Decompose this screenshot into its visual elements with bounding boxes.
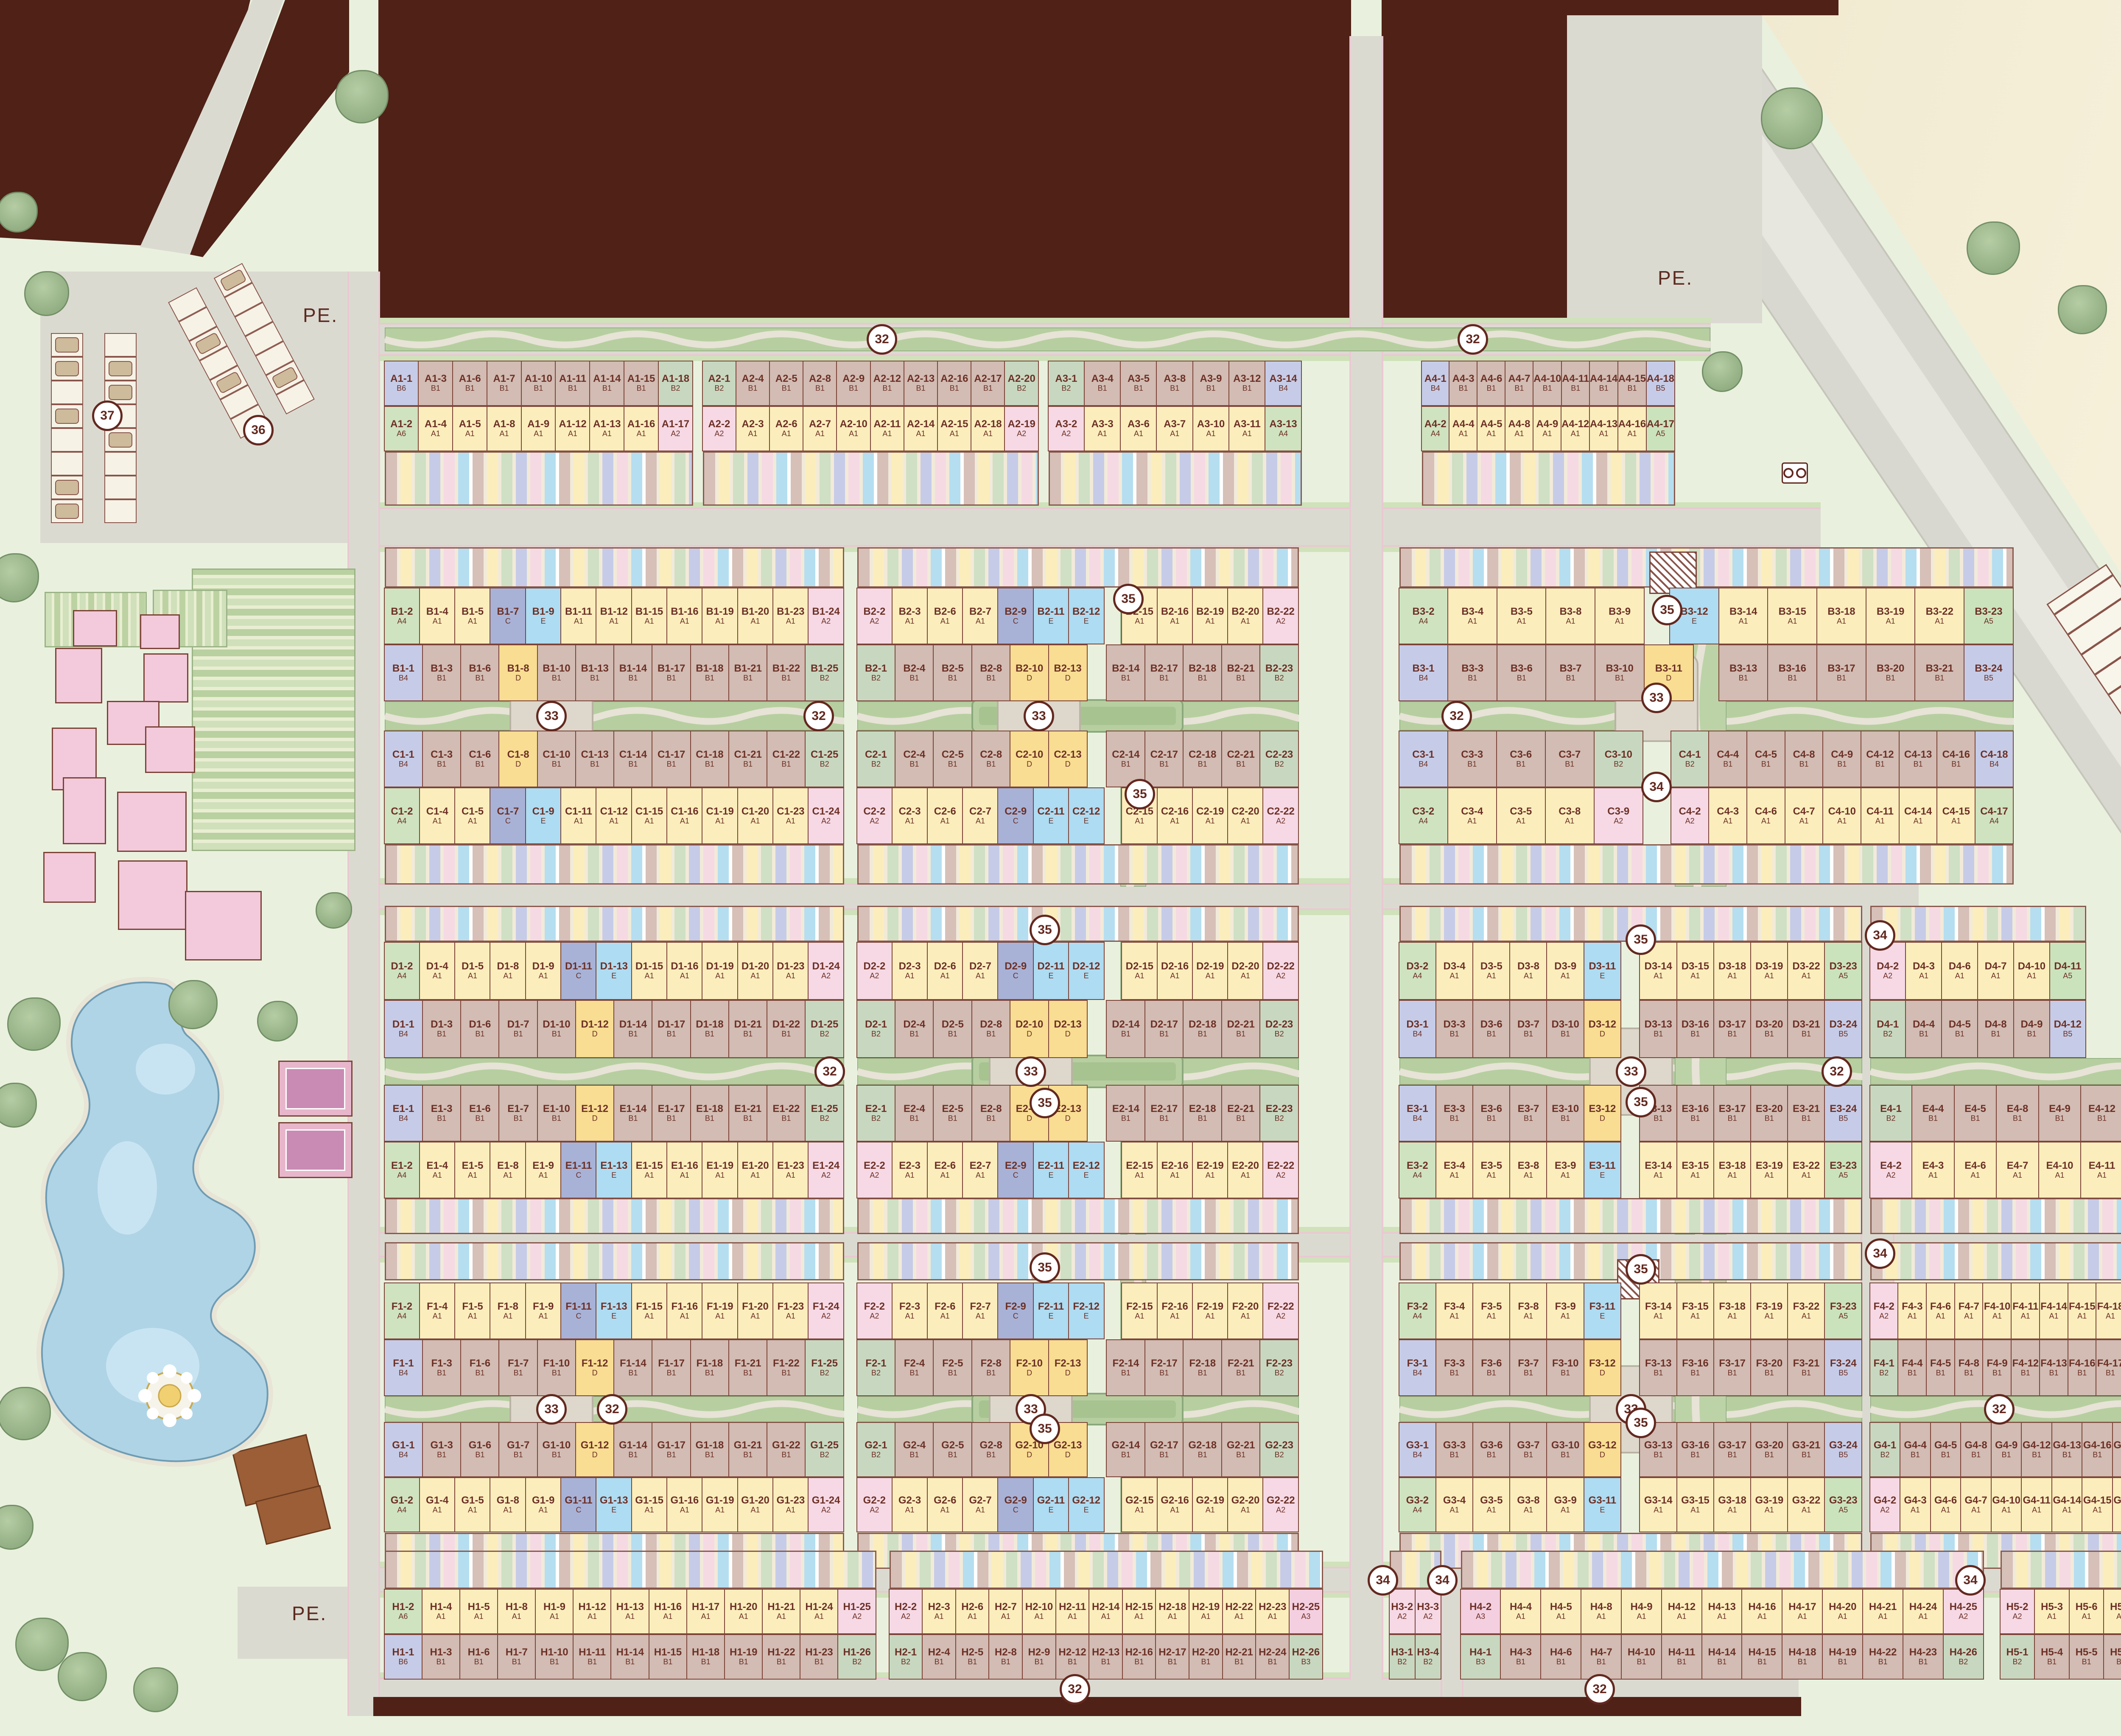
lot-G2-2[interactable]: G2-2A2 [856,1477,893,1532]
lot-G3-23[interactable]: G3-23A5 [1824,1477,1862,1532]
lot-H1-21[interactable]: H1-21A1 [762,1589,801,1634]
lot-D2-17[interactable]: D2-17B1 [1144,1000,1184,1058]
lot-E1-22[interactable]: E1-22B1 [767,1085,806,1142]
lot-A1-5[interactable]: A1-5A1 [452,406,487,451]
lot-C2-18[interactable]: C2-18B1 [1183,731,1222,787]
lot-E1-14[interactable]: E1-14B1 [613,1085,653,1142]
lot-B3-2[interactable]: B3-2A4 [1399,588,1449,644]
lot-H2-25[interactable]: H2-25A3 [1289,1589,1323,1634]
lot-G4-15[interactable]: G4-15A1 [2082,1477,2113,1532]
lot-E2-16[interactable]: E2-16A1 [1157,1142,1193,1198]
lot-H4-9[interactable]: H4-9A1 [1621,1589,1662,1634]
lot-A1-16[interactable]: A1-16A1 [624,406,659,451]
lot-G3-8[interactable]: G3-8A1 [1509,1477,1547,1532]
lot-B1-15[interactable]: B1-15A1 [631,588,668,644]
lot-G3-6[interactable]: G3-6B1 [1472,1422,1511,1477]
lot-H2-26[interactable]: H2-26B3 [1289,1634,1323,1680]
lot-F4-16[interactable]: F4-16B1 [2068,1339,2097,1396]
lot-H1-2[interactable]: H1-2A6 [384,1589,423,1634]
lot-E3-3[interactable]: E3-3B1 [1435,1085,1474,1142]
lot-B1-25[interactable]: B1-25B2 [805,644,844,701]
lot-H1-25[interactable]: H1-25A2 [837,1589,876,1634]
lot-D2-9[interactable]: D2-9C [997,942,1034,1000]
lot-E2-7[interactable]: E2-7A1 [962,1142,999,1198]
lot-C1-5[interactable]: C1-5A1 [454,787,491,844]
lot-F1-17[interactable]: F1-17B1 [652,1339,691,1396]
lot-B2-7[interactable]: B2-7A1 [962,588,999,644]
lot-A3-2[interactable]: A3-2A2 [1048,406,1085,451]
lot-A3-6[interactable]: A3-6A1 [1120,406,1157,451]
lot-F4-7[interactable]: F4-7A1 [1954,1282,1984,1339]
lot-C1-22[interactable]: C1-22B1 [767,731,806,787]
lot-G1-21[interactable]: G1-21B1 [728,1422,768,1477]
lot-A4-7[interactable]: A4-7B1 [1505,361,1533,406]
lot-C1-11[interactable]: C1-11A1 [560,787,597,844]
lot-E3-19[interactable]: E3-19A1 [1750,1142,1788,1198]
lot-B2-18[interactable]: B2-18B1 [1183,644,1222,701]
lot-G3-9[interactable]: G3-9A1 [1546,1477,1584,1532]
lot-C3-5[interactable]: C3-5A1 [1496,787,1546,844]
lot-D1-7[interactable]: D1-7B1 [498,1000,538,1058]
lot-B2-9[interactable]: B2-9C [997,588,1034,644]
lot-F1-9[interactable]: F1-9A1 [525,1282,562,1339]
lot-E1-3[interactable]: E1-3B1 [422,1085,462,1142]
lot-G1-25[interactable]: G1-25B2 [805,1422,844,1477]
lot-D1-6[interactable]: D1-6B1 [460,1000,500,1058]
lot-E3-24[interactable]: E3-24B5 [1824,1085,1862,1142]
map-marker-34[interactable]: 34 [1865,1238,1895,1269]
lot-H2-17[interactable]: H2-17B1 [1155,1634,1189,1680]
lot-H2-24[interactable]: H2-24B1 [1255,1634,1290,1680]
lot-E4-4[interactable]: E4-4B1 [1911,1085,1955,1142]
map-marker-33[interactable]: 33 [1641,683,1672,713]
lot-E4-1[interactable]: E4-1B2 [1869,1085,1913,1142]
lot-H1-16[interactable]: H1-16A1 [649,1589,688,1634]
lot-G4-11[interactable]: G4-11A1 [2021,1477,2052,1532]
lot-G3-16[interactable]: G3-16B1 [1676,1422,1715,1477]
lot-D3-8[interactable]: D3-8A1 [1509,942,1547,1000]
lot-C2-8[interactable]: C2-8B1 [971,731,1011,787]
lot-H2-6[interactable]: H2-6A1 [955,1589,990,1634]
lot-E3-2[interactable]: E3-2A4 [1399,1142,1437,1198]
lot-C1-12[interactable]: C1-12A1 [596,787,632,844]
lot-F2-15[interactable]: F2-15A1 [1121,1282,1158,1339]
lot-D4-8[interactable]: D4-8B1 [1977,1000,2014,1058]
lot-F4-2[interactable]: F4-2A2 [1869,1282,1899,1339]
lot-F1-15[interactable]: F1-15A1 [631,1282,668,1339]
lot-B1-2[interactable]: B1-2A4 [384,588,420,644]
lot-D2-5[interactable]: D2-5B1 [933,1000,972,1058]
lot-A3-5[interactable]: A3-5B1 [1120,361,1157,406]
lot-F2-1[interactable]: F2-1B2 [856,1339,896,1396]
lot-A2-12[interactable]: A2-12B1 [870,361,905,406]
lot-G1-24[interactable]: G1-24A2 [808,1477,844,1532]
lot-D1-3[interactable]: D1-3B1 [422,1000,462,1058]
lot-B2-11[interactable]: B2-11E [1033,588,1069,644]
lot-C1-24[interactable]: C1-24A2 [808,787,844,844]
lot-G1-12[interactable]: G1-12D [575,1422,615,1477]
lot-E1-4[interactable]: E1-4A1 [419,1142,456,1198]
lot-A3-10[interactable]: A3-10A1 [1192,406,1230,451]
lot-H5-8[interactable]: H5-8B1 [2103,1634,2121,1680]
lot-H1-18[interactable]: H1-18B1 [686,1634,725,1680]
lot-E2-11[interactable]: E2-11E [1033,1142,1069,1198]
lot-G1-19[interactable]: G1-19A1 [702,1477,738,1532]
lot-A1-8[interactable]: A1-8A1 [487,406,522,451]
lot-B2-4[interactable]: B2-4B1 [895,644,934,701]
lot-E3-23[interactable]: E3-23A5 [1824,1142,1862,1198]
lot-D1-2[interactable]: D1-2A4 [384,942,420,1000]
lot-F4-8[interactable]: F4-8B1 [1954,1339,1984,1396]
lot-B2-5[interactable]: B2-5B1 [933,644,972,701]
lot-G4-16[interactable]: G4-16B1 [2082,1422,2113,1477]
lot-H5-1[interactable]: H5-1B2 [2000,1634,2035,1680]
lot-E3-10[interactable]: E3-10B1 [1546,1085,1584,1142]
lot-E1-6[interactable]: E1-6B1 [460,1085,500,1142]
lot-A4-8[interactable]: A4-8A1 [1505,406,1533,451]
map-marker-34[interactable]: 34 [1368,1565,1398,1596]
lot-F3-13[interactable]: F3-13B1 [1639,1339,1677,1396]
lot-H4-11[interactable]: H4-11B1 [1661,1634,1702,1680]
lot-A4-3[interactable]: A4-3B1 [1449,361,1477,406]
lot-D2-4[interactable]: D2-4B1 [895,1000,934,1058]
lot-F3-4[interactable]: F3-4A1 [1435,1282,1474,1339]
lot-E1-13[interactable]: E1-13E [596,1142,632,1198]
lot-H1-7[interactable]: H1-7B1 [497,1634,536,1680]
lot-B1-13[interactable]: B1-13B1 [575,644,615,701]
lot-E3-17[interactable]: E3-17B1 [1713,1085,1752,1142]
lot-H1-3[interactable]: H1-3B1 [422,1634,461,1680]
map-marker-37[interactable]: 37 [92,400,123,431]
lot-D1-18[interactable]: D1-18B1 [690,1000,730,1058]
lot-F3-10[interactable]: F3-10B1 [1546,1339,1584,1396]
lot-E4-12[interactable]: E4-12B1 [2080,1085,2121,1142]
lot-F3-16[interactable]: F3-16B1 [1676,1339,1715,1396]
lot-G2-21[interactable]: G2-21B1 [1221,1422,1261,1477]
lot-C3-9[interactable]: C3-9A2 [1594,787,1644,844]
lot-C2-1[interactable]: C2-1B2 [856,731,896,787]
lot-A3-7[interactable]: A3-7A1 [1156,406,1193,451]
lot-D1-13[interactable]: D1-13E [596,942,632,1000]
lot-H4-12[interactable]: H4-12A1 [1661,1589,1702,1634]
lot-G1-23[interactable]: G1-23A1 [772,1477,809,1532]
lot-E1-25[interactable]: E1-25B2 [805,1085,844,1142]
lot-A1-12[interactable]: A1-12A1 [555,406,590,451]
lot-H1-6[interactable]: H1-6B1 [459,1634,498,1680]
lot-G3-18[interactable]: G3-18A1 [1713,1477,1752,1532]
lot-C2-7[interactable]: C2-7A1 [962,787,999,844]
lot-G1-16[interactable]: G1-16A1 [666,1477,703,1532]
lot-F1-20[interactable]: F1-20A1 [737,1282,774,1339]
lot-E2-15[interactable]: E2-15A1 [1121,1142,1158,1198]
lot-B3-16[interactable]: B3-16B1 [1767,644,1817,701]
lot-C1-16[interactable]: C1-16A1 [666,787,703,844]
lot-H4-25[interactable]: H4-25A2 [1943,1589,1984,1634]
lot-D3-16[interactable]: D3-16B1 [1676,1000,1715,1058]
lot-E3-7[interactable]: E3-7B1 [1509,1085,1547,1142]
lot-E1-11[interactable]: E1-11C [560,1142,597,1198]
lot-G2-4[interactable]: G2-4B1 [895,1422,934,1477]
lot-H2-14[interactable]: H2-14A1 [1088,1589,1123,1634]
lot-B3-23[interactable]: B3-23A5 [1964,588,2014,644]
lot-E1-2[interactable]: E1-2A4 [384,1142,420,1198]
lot-D4-10[interactable]: D4-10A1 [2013,942,2050,1000]
lot-F3-3[interactable]: F3-3B1 [1435,1339,1474,1396]
lot-A1-3[interactable]: A1-3B1 [418,361,453,406]
lot-D1-15[interactable]: D1-15A1 [631,942,668,1000]
map-marker-35[interactable]: 35 [1030,1414,1060,1444]
lot-B1-23[interactable]: B1-23A1 [772,588,809,644]
lot-A3-12[interactable]: A3-12B1 [1228,361,1266,406]
lot-C2-22[interactable]: C2-22A2 [1262,787,1299,844]
lot-D1-20[interactable]: D1-20A1 [737,942,774,1000]
lot-B3-4[interactable]: B3-4A1 [1447,588,1497,644]
lot-C2-12[interactable]: C2-12E [1068,787,1105,844]
lot-C3-1[interactable]: C3-1B4 [1399,731,1449,787]
lot-E3-12[interactable]: E3-12D [1584,1085,1622,1142]
lot-C1-18[interactable]: C1-18B1 [690,731,730,787]
lot-D1-12[interactable]: D1-12D [575,1000,615,1058]
lot-E1-9[interactable]: E1-9A1 [525,1142,562,1198]
lot-H4-5[interactable]: H4-5A1 [1540,1589,1581,1634]
lot-H4-20[interactable]: H4-20A1 [1822,1589,1863,1634]
lot-F4-17[interactable]: F4-17B1 [2096,1339,2121,1396]
lot-B1-7[interactable]: B1-7C [490,588,526,644]
lot-D4-2[interactable]: D4-2A2 [1869,942,1906,1000]
lot-H2-5[interactable]: H2-5B1 [955,1634,990,1680]
lot-C3-8[interactable]: C3-8A1 [1545,787,1595,844]
lot-D1-19[interactable]: D1-19A1 [702,942,738,1000]
lot-C3-4[interactable]: C3-4A1 [1447,787,1497,844]
lot-D1-23[interactable]: D1-23A1 [772,942,809,1000]
lot-B3-7[interactable]: B3-7B1 [1545,644,1595,701]
lot-A2-4[interactable]: A2-4B1 [736,361,770,406]
lot-F3-6[interactable]: F3-6B1 [1472,1339,1511,1396]
lot-F1-25[interactable]: F1-25B2 [805,1339,844,1396]
lot-H2-21[interactable]: H2-21B1 [1222,1634,1256,1680]
lot-D3-18[interactable]: D3-18A1 [1713,942,1752,1000]
lot-G3-10[interactable]: G3-10B1 [1546,1422,1584,1477]
lot-D1-16[interactable]: D1-16A1 [666,942,703,1000]
map-marker-33[interactable]: 33 [1616,1056,1646,1087]
lot-G3-22[interactable]: G3-22A1 [1787,1477,1825,1532]
lot-D2-14[interactable]: D2-14B1 [1106,1000,1145,1058]
lot-F2-20[interactable]: F2-20A1 [1227,1282,1264,1339]
lot-E4-6[interactable]: E4-6A1 [1954,1142,1997,1198]
lot-D2-13[interactable]: D2-13D [1048,1000,1088,1058]
lot-G3-1[interactable]: G3-1B4 [1399,1422,1437,1477]
lot-H1-10[interactable]: H1-10B1 [535,1634,574,1680]
lot-A2-5[interactable]: A2-5B1 [769,361,804,406]
lot-D2-19[interactable]: D2-19A1 [1192,942,1228,1000]
lot-G3-4[interactable]: G3-4A1 [1435,1477,1474,1532]
lot-A1-15[interactable]: A1-15B1 [624,361,659,406]
lot-B2-23[interactable]: B2-23B2 [1259,644,1299,701]
lot-D2-21[interactable]: D2-21B1 [1221,1000,1261,1058]
lot-D1-8[interactable]: D1-8A1 [490,942,526,1000]
map-marker-32[interactable]: 32 [1584,1674,1615,1705]
lot-G3-3[interactable]: G3-3B1 [1435,1422,1474,1477]
lot-H1-24[interactable]: H1-24A1 [800,1589,839,1634]
lot-C2-11[interactable]: C2-11E [1033,787,1069,844]
lot-F1-4[interactable]: F1-4A1 [419,1282,456,1339]
lot-G2-5[interactable]: G2-5B1 [933,1422,972,1477]
lot-C1-6[interactable]: C1-6B1 [460,731,500,787]
lot-E3-9[interactable]: E3-9A1 [1546,1142,1584,1198]
lot-G2-16[interactable]: G2-16A1 [1157,1477,1193,1532]
lot-A2-10[interactable]: A2-10A1 [836,406,871,451]
map-marker-33[interactable]: 33 [536,701,567,731]
lot-H2-8[interactable]: H2-8B1 [988,1634,1023,1680]
lot-D2-6[interactable]: D2-6A1 [927,942,963,1000]
lot-F3-22[interactable]: F3-22A1 [1787,1282,1825,1339]
lot-D1-4[interactable]: D1-4A1 [419,942,456,1000]
lot-F3-21[interactable]: F3-21B1 [1787,1339,1825,1396]
lot-G1-8[interactable]: G1-8A1 [490,1477,526,1532]
lot-G4-13[interactable]: G4-13B1 [2051,1422,2083,1477]
lot-A4-11[interactable]: A4-11B1 [1561,361,1590,406]
lot-D3-20[interactable]: D3-20B1 [1750,1000,1788,1058]
lot-G3-21[interactable]: G3-21B1 [1787,1422,1825,1477]
lot-B1-10[interactable]: B1-10B1 [537,644,576,701]
lot-B3-19[interactable]: B3-19A1 [1866,588,1916,644]
lot-H4-21[interactable]: H4-21A1 [1862,1589,1903,1634]
map-marker-35[interactable]: 35 [1626,1087,1656,1117]
lot-C2-16[interactable]: C2-16A1 [1157,787,1193,844]
lot-E2-17[interactable]: E2-17B1 [1144,1085,1184,1142]
lot-D3-23[interactable]: D3-23A5 [1824,942,1862,1000]
lot-B2-16[interactable]: B2-16A1 [1157,588,1193,644]
lot-E1-17[interactable]: E1-17B1 [652,1085,691,1142]
lot-E1-16[interactable]: E1-16A1 [666,1142,703,1198]
lot-E1-5[interactable]: E1-5A1 [454,1142,491,1198]
lot-F1-23[interactable]: F1-23A1 [772,1282,809,1339]
lot-F1-7[interactable]: F1-7B1 [498,1339,538,1396]
lot-D2-10[interactable]: D2-10D [1010,1000,1049,1058]
lot-H2-23[interactable]: H2-23A1 [1255,1589,1290,1634]
lot-E3-4[interactable]: E3-4A1 [1435,1142,1474,1198]
lot-F3-23[interactable]: F3-23A5 [1824,1282,1862,1339]
lot-D4-9[interactable]: D4-9B1 [2013,1000,2050,1058]
lot-F1-8[interactable]: F1-8A1 [490,1282,526,1339]
map-marker-35[interactable]: 35 [1652,595,1682,625]
lot-E3-1[interactable]: E3-1B4 [1399,1085,1437,1142]
lot-E2-8[interactable]: E2-8B1 [971,1085,1011,1142]
lot-F3-15[interactable]: F3-15A1 [1676,1282,1715,1339]
lot-D2-7[interactable]: D2-7A1 [962,942,999,1000]
lot-C4-15[interactable]: C4-15A1 [1936,787,1975,844]
lot-F1-2[interactable]: F1-2A4 [384,1282,420,1339]
lot-C4-7[interactable]: C4-7A1 [1785,787,1824,844]
lot-G2-17[interactable]: G2-17B1 [1144,1422,1184,1477]
lot-F3-11[interactable]: F3-11E [1584,1282,1622,1339]
lot-A1-9[interactable]: A1-9A1 [521,406,556,451]
lot-G1-1[interactable]: G1-1B4 [384,1422,423,1477]
lot-H2-12[interactable]: H2-12B1 [1055,1634,1090,1680]
lot-G2-9[interactable]: G2-9C [997,1477,1034,1532]
lot-B3-24[interactable]: B3-24B5 [1964,644,2014,701]
lot-F1-11[interactable]: F1-11C [560,1282,597,1339]
lot-E3-18[interactable]: E3-18A1 [1713,1142,1752,1198]
lot-G2-20[interactable]: G2-20A1 [1227,1477,1264,1532]
lot-G4-3[interactable]: G4-3A1 [1900,1477,1931,1532]
map-marker-33[interactable]: 33 [536,1394,567,1425]
lot-H1-23[interactable]: H1-23B1 [800,1634,839,1680]
lot-B3-20[interactable]: B3-20B1 [1866,644,1916,701]
lot-D2-16[interactable]: D2-16A1 [1157,942,1193,1000]
lot-G3-17[interactable]: G3-17B1 [1713,1422,1752,1477]
lot-A3-3[interactable]: A3-3A1 [1084,406,1121,451]
lot-F4-4[interactable]: F4-4B1 [1897,1339,1927,1396]
lot-A2-17[interactable]: A2-17B1 [971,361,1005,406]
lot-E2-2[interactable]: E2-2A2 [856,1142,893,1198]
lot-B1-22[interactable]: B1-22B1 [767,644,806,701]
lot-C1-20[interactable]: C1-20A1 [737,787,774,844]
lot-E3-11[interactable]: E3-11E [1584,1142,1622,1198]
lot-F1-16[interactable]: F1-16A1 [666,1282,703,1339]
map-marker-35[interactable]: 35 [1626,1408,1656,1438]
lot-H4-8[interactable]: H4-8A1 [1581,1589,1622,1634]
lot-G4-2[interactable]: G4-2A2 [1869,1477,1901,1532]
lot-B1-20[interactable]: B1-20A1 [737,588,774,644]
lot-B2-1[interactable]: B2-1B2 [856,644,896,701]
lot-A3-14[interactable]: A3-14B4 [1265,361,1302,406]
lot-H2-2[interactable]: H2-2A2 [889,1589,923,1634]
map-marker-32[interactable]: 32 [1060,1674,1090,1705]
lot-D3-7[interactable]: D3-7B1 [1509,1000,1547,1058]
lot-E3-15[interactable]: E3-15A1 [1676,1142,1715,1198]
lot-B3-6[interactable]: B3-6B1 [1497,644,1547,701]
lot-H2-1[interactable]: H2-1B2 [889,1634,923,1680]
lot-A1-17[interactable]: A1-17A2 [658,406,693,451]
lot-G1-14[interactable]: G1-14B1 [613,1422,653,1477]
map-marker-35[interactable]: 35 [1626,1254,1656,1285]
lot-H4-17[interactable]: H4-17A1 [1782,1589,1823,1634]
lot-F3-8[interactable]: F3-8A1 [1509,1282,1547,1339]
lot-F3-7[interactable]: F3-7B1 [1509,1339,1547,1396]
map-marker-35[interactable]: 35 [1626,924,1656,955]
lot-E2-3[interactable]: E2-3A1 [892,1142,928,1198]
lot-A2-7[interactable]: A2-7A1 [803,406,837,451]
lot-B2-20[interactable]: B2-20A1 [1227,588,1264,644]
lot-C1-10[interactable]: C1-10B1 [537,731,576,787]
lot-E3-8[interactable]: E3-8A1 [1509,1142,1547,1198]
map-marker-35[interactable]: 35 [1030,1252,1060,1283]
lot-G2-8[interactable]: G2-8B1 [971,1422,1011,1477]
lot-A2-18[interactable]: A2-18A1 [971,406,1005,451]
lot-E1-7[interactable]: E1-7B1 [498,1085,538,1142]
lot-H2-13[interactable]: H2-13B1 [1088,1634,1123,1680]
lot-D2-15[interactable]: D2-15A1 [1121,942,1158,1000]
lot-B2-17[interactable]: B2-17B1 [1144,644,1184,701]
lot-H2-20[interactable]: H2-20B1 [1189,1634,1223,1680]
lot-D2-3[interactable]: D2-3A1 [892,942,928,1000]
lot-H1-4[interactable]: H1-4A1 [422,1589,461,1634]
lot-F1-13[interactable]: F1-13E [596,1282,632,1339]
lot-C2-21[interactable]: C2-21B1 [1221,731,1261,787]
lot-B2-14[interactable]: B2-14B1 [1106,644,1145,701]
lot-F2-9[interactable]: F2-9C [997,1282,1034,1339]
lot-F3-2[interactable]: F3-2A4 [1399,1282,1437,1339]
lot-G1-11[interactable]: G1-11C [560,1477,597,1532]
lot-B1-18[interactable]: B1-18B1 [690,644,730,701]
lot-G4-12[interactable]: G4-12B1 [2021,1422,2052,1477]
lot-F3-1[interactable]: F3-1B4 [1399,1339,1437,1396]
lot-B3-15[interactable]: B3-15A1 [1767,588,1817,644]
lot-C1-21[interactable]: C1-21B1 [728,731,768,787]
lot-H4-6[interactable]: H4-6B1 [1540,1634,1581,1680]
lot-A3-9[interactable]: A3-9B1 [1192,361,1230,406]
